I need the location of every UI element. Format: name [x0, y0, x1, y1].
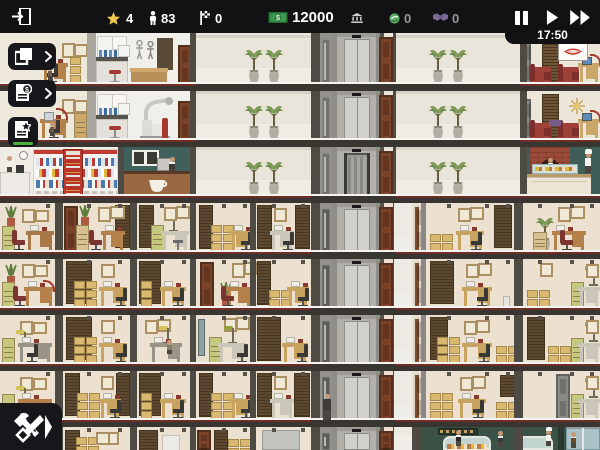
- svg-text:$: $: [25, 87, 29, 94]
